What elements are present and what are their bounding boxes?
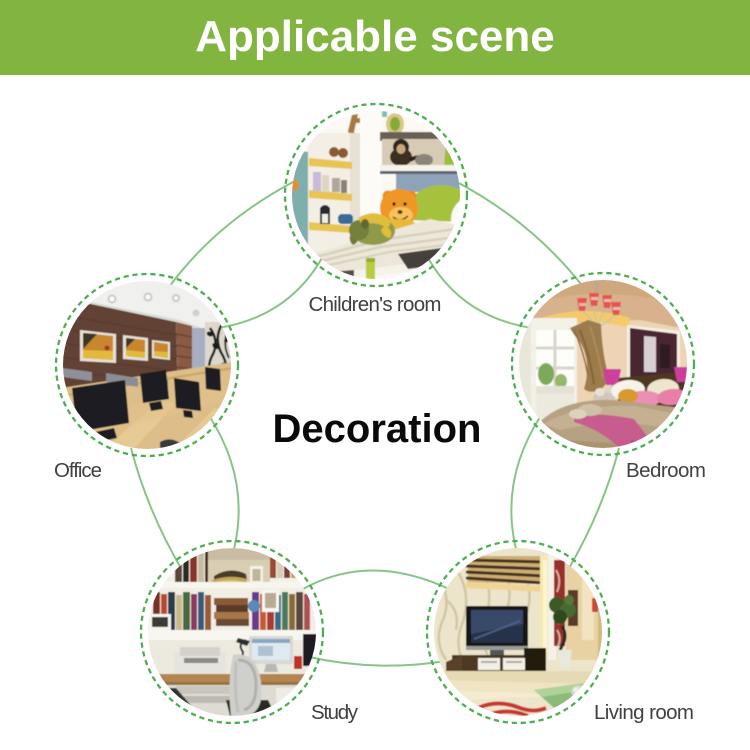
svg-text:Study: Study (311, 701, 359, 724)
svg-text:Living room: Living room (594, 701, 694, 724)
svg-text:Children's room: Children's room (309, 293, 442, 316)
svg-text:Office: Office (54, 459, 102, 482)
svg-text:Decoration: Decoration (273, 407, 482, 451)
svg-text:Bedroom: Bedroom (626, 459, 706, 482)
